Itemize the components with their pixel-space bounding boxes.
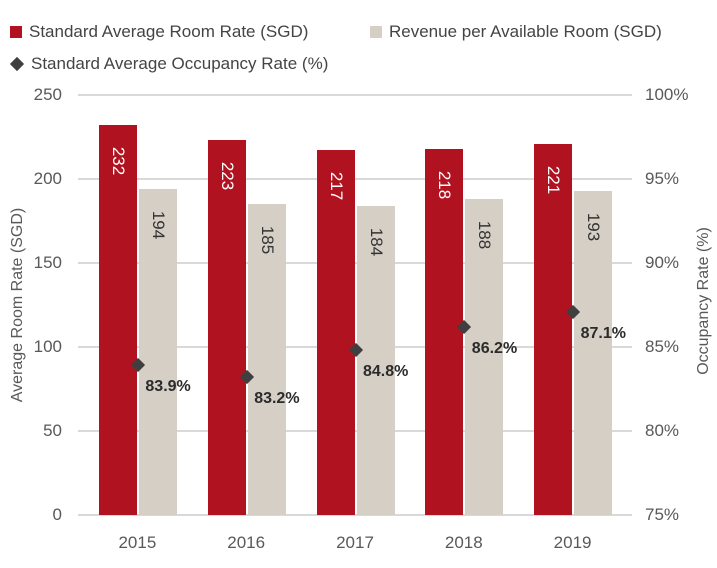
occupancy-label-2016: 83.2% [254, 390, 299, 408]
bar-room-rate-2017 [317, 150, 355, 515]
gridline [78, 94, 632, 96]
bar-label-revpar-2017: 184 [366, 228, 386, 256]
legend-item-occupancy: Standard Average Occupancy Rate (%) [10, 53, 328, 75]
bar-room-rate-2016 [208, 140, 246, 515]
left-axis-tick-label: 150 [10, 253, 62, 273]
right-axis-tick-label: 75% [645, 505, 679, 525]
left-axis-tick-label: 50 [10, 421, 62, 441]
x-axis-label-2017: 2017 [336, 533, 374, 553]
legend-label-room-rate: Standard Average Room Rate (SGD) [29, 22, 308, 42]
right-axis-title: Occupancy Rate (%) [695, 227, 713, 375]
occupancy-label-2018: 86.2% [472, 340, 517, 358]
bar-label-revpar-2019: 193 [583, 213, 603, 241]
revpar-square-icon [370, 26, 382, 38]
legend-item-revpar: Revenue per Available Room (SGD) [370, 21, 662, 43]
occupancy-label-2019: 87.1% [581, 325, 626, 343]
occupancy-diamond-icon [10, 57, 24, 71]
x-axis-label-2015: 2015 [118, 533, 156, 553]
right-axis-tick-label: 85% [645, 337, 679, 357]
bar-label-room-rate-2016: 223 [217, 162, 237, 190]
occupancy-label-2017: 84.8% [363, 363, 408, 381]
x-axis-label-2016: 2016 [227, 533, 265, 553]
right-axis-tick-label: 100% [645, 85, 688, 105]
bar-label-room-rate-2015: 232 [108, 147, 128, 175]
legend-item-room-rate: Standard Average Room Rate (SGD) [10, 21, 308, 43]
bar-label-revpar-2018: 188 [474, 221, 494, 249]
room-rate-square-icon [10, 26, 22, 38]
bar-room-rate-2015 [99, 125, 137, 515]
bar-room-rate-2018 [425, 149, 463, 515]
legend-label-occupancy: Standard Average Occupancy Rate (%) [31, 54, 328, 74]
legend-label-revpar: Revenue per Available Room (SGD) [389, 22, 662, 42]
bar-room-rate-2019 [534, 144, 572, 515]
right-axis-tick-label: 95% [645, 169, 679, 189]
x-axis-label-2019: 2019 [554, 533, 592, 553]
hotel-kpi-combo-chart: Standard Average Room Rate (SGD) Revenue… [0, 0, 717, 568]
x-axis-label-2018: 2018 [445, 533, 483, 553]
bar-label-room-rate-2017: 217 [326, 172, 346, 200]
bar-label-revpar-2015: 194 [148, 211, 168, 239]
occupancy-label-2015: 83.9% [145, 378, 190, 396]
bar-label-room-rate-2019: 221 [543, 166, 563, 194]
bar-label-revpar-2016: 185 [257, 226, 277, 254]
left-axis-title: Average Room Rate (SGD) [9, 208, 27, 402]
bar-label-room-rate-2018: 218 [434, 171, 454, 199]
left-axis-tick-label: 250 [10, 85, 62, 105]
right-axis-tick-label: 80% [645, 421, 679, 441]
left-axis-tick-label: 100 [10, 337, 62, 357]
left-axis-tick-label: 200 [10, 169, 62, 189]
left-axis-tick-label: 0 [10, 505, 62, 525]
right-axis-tick-label: 90% [645, 253, 679, 273]
